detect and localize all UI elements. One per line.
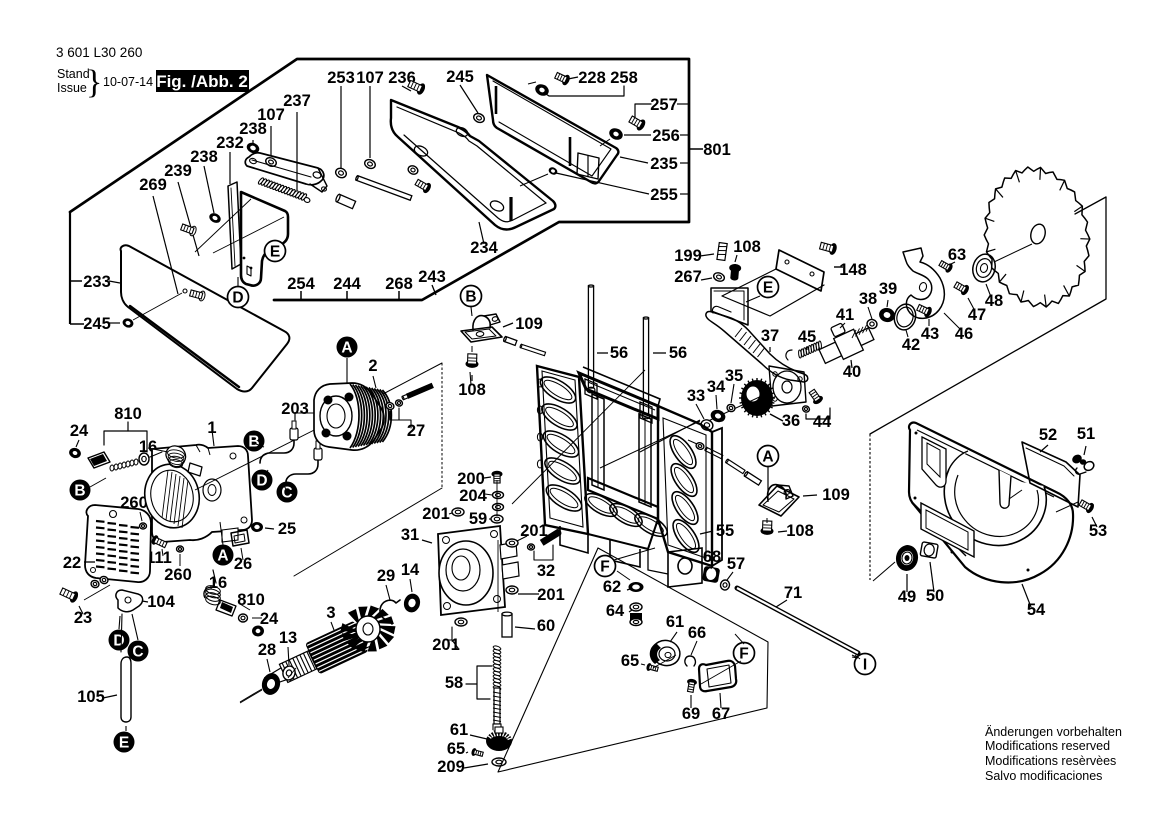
svg-text:24: 24 [260, 610, 279, 628]
svg-text:C: C [281, 485, 292, 502]
svg-text:Salvo modificaciones: Salvo modificaciones [985, 769, 1102, 783]
svg-text:71: 71 [784, 584, 802, 602]
svg-text:35: 35 [725, 367, 743, 385]
svg-text:C: C [132, 644, 143, 661]
svg-text:269: 269 [139, 176, 167, 194]
svg-text:105: 105 [77, 688, 105, 706]
svg-text:108: 108 [458, 381, 486, 399]
svg-text:256: 256 [652, 127, 680, 145]
svg-text:209: 209 [437, 758, 465, 776]
svg-text:36: 36 [782, 412, 800, 430]
svg-text:A: A [341, 340, 352, 357]
svg-text:37: 37 [761, 327, 779, 345]
svg-text:D: D [113, 633, 124, 650]
svg-text:810: 810 [114, 405, 142, 423]
svg-text:24: 24 [70, 422, 89, 440]
svg-text:D: D [232, 290, 243, 307]
svg-text:232: 232 [216, 134, 244, 152]
svg-text:Issue: Issue [57, 81, 87, 95]
svg-text:A: A [217, 548, 228, 565]
svg-text:238: 238 [190, 148, 218, 166]
svg-text:F: F [739, 646, 748, 663]
svg-text:27: 27 [407, 422, 425, 440]
svg-text:47: 47 [968, 306, 986, 324]
svg-text:F: F [600, 559, 609, 576]
svg-text:61: 61 [450, 721, 468, 739]
svg-text:I: I [863, 657, 867, 674]
svg-text:38: 38 [859, 290, 877, 308]
svg-text:22: 22 [63, 554, 81, 572]
svg-text:60: 60 [537, 617, 555, 635]
svg-text:257: 257 [650, 96, 678, 114]
svg-text:64: 64 [606, 602, 625, 620]
svg-text:58: 58 [445, 674, 463, 692]
svg-text:B: B [248, 434, 259, 451]
svg-text:810: 810 [237, 591, 265, 609]
svg-text:2: 2 [368, 357, 377, 375]
svg-text:228: 228 [578, 69, 606, 87]
svg-text:B: B [74, 483, 85, 500]
svg-text:237: 237 [283, 92, 311, 110]
svg-text:245: 245 [83, 315, 111, 333]
svg-text:42: 42 [902, 336, 920, 354]
svg-text:B: B [465, 289, 476, 306]
svg-text:65: 65 [621, 652, 639, 670]
svg-text:258: 258 [610, 69, 638, 87]
svg-text:56: 56 [610, 344, 628, 362]
svg-text:D: D [256, 473, 267, 490]
svg-text:148: 148 [839, 261, 867, 279]
svg-text:13: 13 [279, 629, 297, 647]
svg-text:59: 59 [469, 510, 487, 528]
svg-text:201: 201 [422, 505, 450, 523]
svg-text:Änderungen vorbehalten: Änderungen vorbehalten [985, 725, 1122, 739]
svg-text:43: 43 [921, 325, 939, 343]
svg-text:57: 57 [727, 555, 745, 573]
svg-text:E: E [119, 735, 129, 752]
svg-text:53: 53 [1089, 522, 1107, 540]
svg-text:253: 253 [327, 69, 355, 87]
svg-text:Stand: Stand [57, 67, 90, 81]
svg-text:244: 244 [333, 275, 361, 293]
svg-text:45: 45 [798, 328, 816, 346]
svg-text:29: 29 [377, 567, 395, 585]
svg-text:39: 39 [879, 280, 897, 298]
svg-text:23: 23 [74, 609, 92, 627]
svg-text:233: 233 [83, 273, 111, 291]
svg-text:200: 200 [457, 470, 485, 488]
svg-text:239: 239 [164, 162, 192, 180]
svg-text:104: 104 [147, 593, 175, 611]
svg-text:A: A [762, 449, 773, 466]
svg-text:108: 108 [733, 238, 761, 256]
svg-text:41: 41 [836, 306, 854, 324]
svg-text:E: E [763, 280, 773, 297]
svg-text:235: 235 [650, 155, 678, 173]
svg-text:63: 63 [948, 246, 966, 264]
svg-text:267: 267 [674, 268, 702, 286]
svg-text:255: 255 [650, 186, 678, 204]
svg-text:199: 199 [674, 247, 702, 265]
svg-text:44: 44 [813, 413, 832, 431]
svg-text:48: 48 [985, 292, 1003, 310]
svg-text:51: 51 [1077, 425, 1095, 443]
svg-text:65: 65 [447, 740, 465, 758]
svg-text:268: 268 [385, 275, 413, 293]
svg-text:204: 204 [459, 487, 487, 505]
svg-text:56: 56 [669, 344, 687, 362]
svg-text:Modifications reserved: Modifications reserved [985, 739, 1110, 753]
svg-text:46: 46 [955, 325, 973, 343]
svg-text:50: 50 [926, 587, 944, 605]
svg-text:109: 109 [515, 315, 543, 333]
svg-text:254: 254 [287, 275, 315, 293]
svg-text:3 601 L30 260: 3 601 L30 260 [56, 45, 142, 60]
svg-text:E: E [270, 244, 280, 261]
svg-text:25: 25 [278, 520, 296, 538]
svg-text:3: 3 [326, 604, 335, 622]
svg-text:31: 31 [401, 526, 419, 544]
svg-text:}: } [86, 64, 102, 101]
svg-text:52: 52 [1039, 426, 1057, 444]
svg-text:33: 33 [687, 387, 705, 405]
svg-text:234: 234 [470, 239, 498, 257]
svg-text:109: 109 [822, 486, 850, 504]
svg-text:68: 68 [703, 548, 721, 566]
svg-text:201: 201 [537, 586, 565, 604]
svg-text:801: 801 [703, 141, 731, 159]
svg-text:34: 34 [707, 378, 726, 396]
svg-text:55: 55 [716, 522, 734, 540]
svg-text:108: 108 [786, 522, 814, 540]
svg-text:107: 107 [356, 69, 384, 87]
svg-text:28: 28 [258, 641, 276, 659]
svg-text:10-07-14: 10-07-14 [103, 75, 153, 89]
svg-text:243: 243 [418, 268, 446, 286]
svg-text:260: 260 [164, 566, 192, 584]
svg-text:61: 61 [666, 613, 684, 631]
svg-text:Modifications resèrvèes: Modifications resèrvèes [985, 754, 1116, 768]
svg-text:14: 14 [401, 561, 420, 579]
svg-text:245: 245 [446, 68, 474, 86]
svg-text:62: 62 [603, 578, 621, 596]
svg-text:66: 66 [688, 624, 706, 642]
svg-text:Fig. /Abb. 2: Fig. /Abb. 2 [156, 72, 248, 91]
svg-text:32: 32 [537, 562, 555, 580]
